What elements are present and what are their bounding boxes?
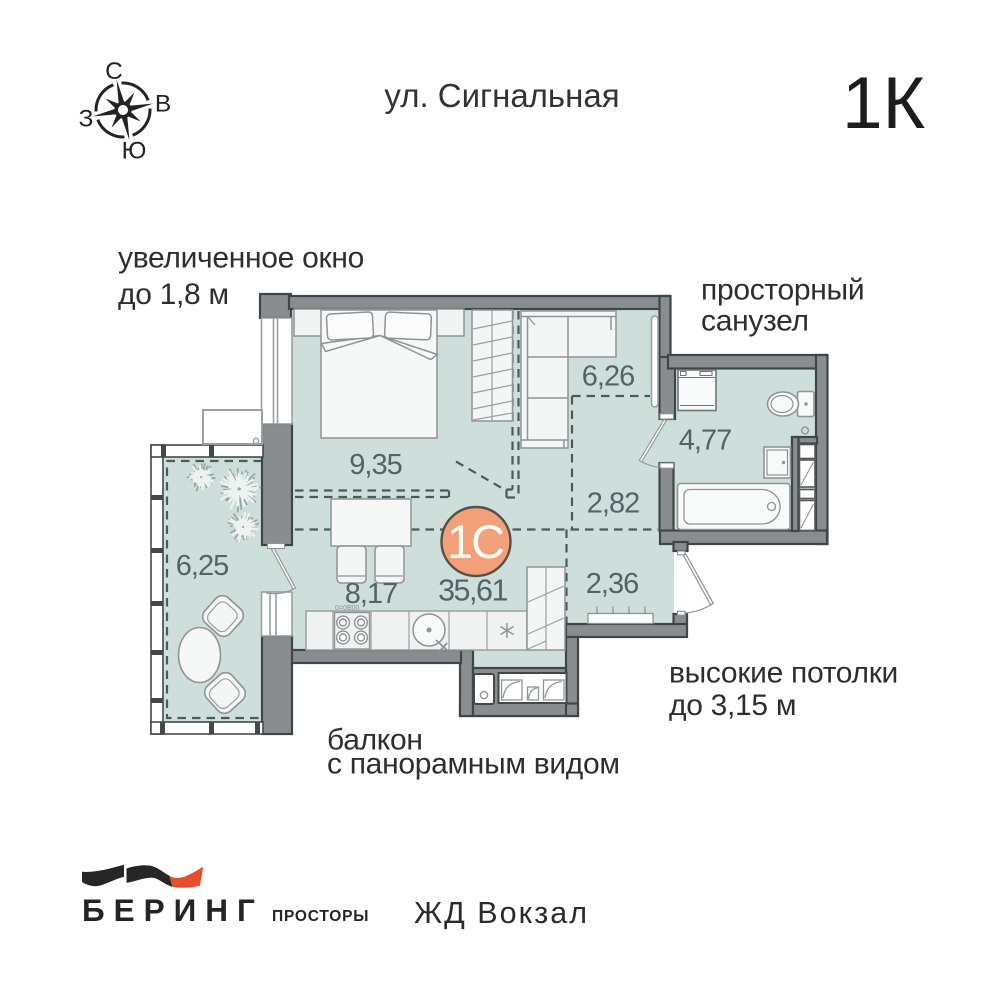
svg-text:высокие потолки: высокие потолки (669, 657, 898, 690)
svg-text:2,82: 2,82 (587, 488, 639, 520)
svg-text:санузел: санузел (701, 305, 809, 338)
svg-text:ул. Сигнальная: ул. Сигнальная (384, 77, 619, 114)
svg-text:6,25: 6,25 (176, 550, 228, 582)
svg-text:ПРОСТОРЫ: ПРОСТОРЫ (272, 908, 369, 925)
svg-text:9,35: 9,35 (349, 449, 401, 481)
svg-text:1К: 1К (842, 63, 926, 144)
svg-text:4,77: 4,77 (679, 425, 731, 457)
svg-text:2,36: 2,36 (586, 568, 638, 600)
svg-text:1С: 1С (447, 515, 504, 568)
svg-text:ЖД Вокзал: ЖД Вокзал (414, 896, 589, 930)
svg-text:З: З (79, 106, 94, 133)
svg-text:35,61: 35,61 (438, 574, 507, 608)
svg-text:С: С (105, 58, 123, 85)
svg-text:до 3,15 м: до 3,15 м (669, 689, 796, 722)
svg-text:В: В (155, 91, 171, 118)
svg-text:БЕРИНГ: БЕРИНГ (82, 892, 264, 928)
svg-text:8,17: 8,17 (345, 578, 397, 610)
svg-text:просторный: просторный (701, 274, 864, 307)
svg-text:Ю: Ю (122, 138, 147, 165)
svg-text:до 1,8 м: до 1,8 м (118, 278, 229, 311)
svg-text:с панорамным видом: с панорамным видом (327, 748, 620, 781)
svg-text:увеличенное окно: увеличенное окно (118, 242, 364, 275)
svg-text:6,26: 6,26 (582, 361, 634, 393)
